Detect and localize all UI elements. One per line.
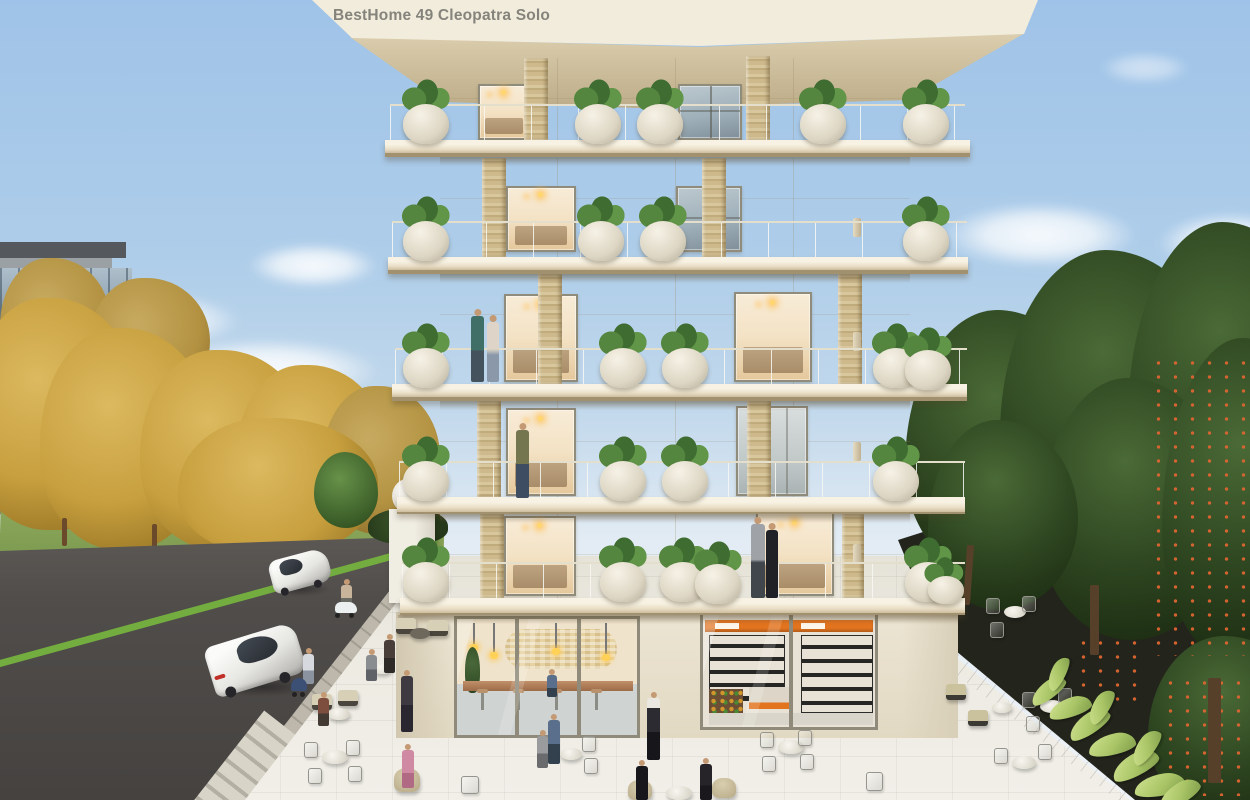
balcony-planter	[903, 104, 949, 144]
balcony-planter	[662, 461, 708, 501]
person-seated-woman	[402, 750, 414, 788]
car-rear-window	[234, 631, 281, 666]
scooter	[335, 602, 357, 613]
outdoor-chair	[304, 742, 318, 758]
car-tail-light	[214, 674, 226, 681]
person-balcony-man	[751, 524, 765, 598]
outdoor-chair	[1022, 596, 1036, 612]
tree-trunk	[1090, 585, 1099, 655]
slab-shadow	[440, 157, 910, 166]
outdoor-table	[328, 708, 350, 720]
person-seated	[366, 655, 377, 681]
person-seated-woman	[700, 764, 712, 800]
outdoor-table	[666, 786, 692, 800]
person-seated	[318, 698, 329, 726]
person-balcony-man	[471, 316, 484, 382]
outdoor-table	[322, 750, 348, 764]
person-seated-woman	[636, 766, 648, 800]
tree-trunk	[62, 518, 67, 546]
car-windshield	[278, 556, 304, 577]
outdoor-chair	[800, 754, 814, 770]
balcony-planter	[575, 104, 621, 144]
person-seated-man	[537, 736, 548, 768]
outdoor-table	[992, 702, 1012, 713]
background-roof	[0, 242, 126, 258]
person-balcony-man	[516, 430, 529, 498]
outdoor-chair	[348, 766, 362, 782]
balcony-planter	[640, 221, 686, 261]
cloud	[248, 243, 378, 288]
outdoor-chair	[338, 690, 358, 706]
outdoor-chair	[968, 710, 988, 726]
outdoor-table	[1012, 756, 1036, 769]
outdoor-chair	[990, 622, 1004, 638]
balcony-planter	[928, 576, 964, 604]
tree-trunk	[1208, 678, 1221, 783]
outdoor-chair	[946, 684, 966, 700]
balcony-slab	[388, 257, 968, 274]
storefront-cafe	[454, 616, 640, 738]
person-standing	[384, 640, 395, 673]
slab-shadow	[440, 274, 910, 283]
balcony-planter	[403, 562, 449, 602]
outdoor-chair	[986, 598, 1000, 614]
balcony-planter	[905, 350, 951, 390]
outdoor-chair	[584, 758, 598, 774]
balcony-planter	[600, 348, 646, 388]
person-balcony-woman	[487, 322, 499, 382]
outdoor-chair	[346, 740, 360, 756]
person-balcony-woman	[766, 530, 778, 598]
person-standing	[401, 676, 413, 732]
stroller	[291, 678, 307, 691]
balcony-planter	[403, 348, 449, 388]
orange-fruit	[1150, 356, 1250, 656]
outdoor-chair	[760, 732, 774, 748]
balcony-planter	[600, 461, 646, 501]
balcony-planter	[578, 221, 624, 261]
wall-sconce	[853, 544, 861, 563]
outdoor-chair	[762, 756, 776, 772]
slab-shadow	[440, 514, 910, 523]
outdoor-chair	[798, 730, 812, 746]
outdoor-chair	[712, 778, 736, 798]
outdoor-chair	[461, 776, 479, 794]
balcony-planter	[873, 461, 919, 501]
balcony-planter	[403, 104, 449, 144]
building-sign: BestHome 49 Cleopatra Solo	[333, 7, 653, 25]
outdoor-chair	[1026, 716, 1040, 732]
balcony-planter	[800, 104, 846, 144]
outdoor-chair	[866, 772, 883, 791]
cloud	[1100, 52, 1190, 84]
outdoor-table	[410, 628, 430, 639]
glass-reflection	[457, 619, 637, 735]
balcony-slab	[385, 140, 970, 157]
balcony-planter	[903, 221, 949, 261]
slab-shadow	[398, 615, 958, 624]
architectural-render: BestHome 49 Cleopatra Solo	[0, 0, 1250, 800]
outdoor-chair	[582, 736, 596, 752]
person-seated-man	[548, 720, 560, 764]
balcony-planter	[403, 461, 449, 501]
wall-sconce	[853, 442, 861, 461]
slab-shadow	[440, 401, 910, 410]
outdoor-chair	[1038, 744, 1052, 760]
glass-reflection	[703, 615, 875, 727]
storefront-market	[700, 612, 878, 730]
outdoor-chair	[308, 768, 322, 784]
balcony-planter	[695, 564, 741, 604]
outdoor-chair	[994, 748, 1008, 764]
balcony-planter	[403, 221, 449, 261]
balcony-planter	[637, 104, 683, 144]
outdoor-chair	[428, 620, 448, 636]
person-waiter	[647, 698, 660, 760]
balcony-planter	[600, 562, 646, 602]
ground-corner-right	[902, 612, 958, 738]
balcony-planter	[662, 348, 708, 388]
outdoor-table	[560, 748, 582, 760]
